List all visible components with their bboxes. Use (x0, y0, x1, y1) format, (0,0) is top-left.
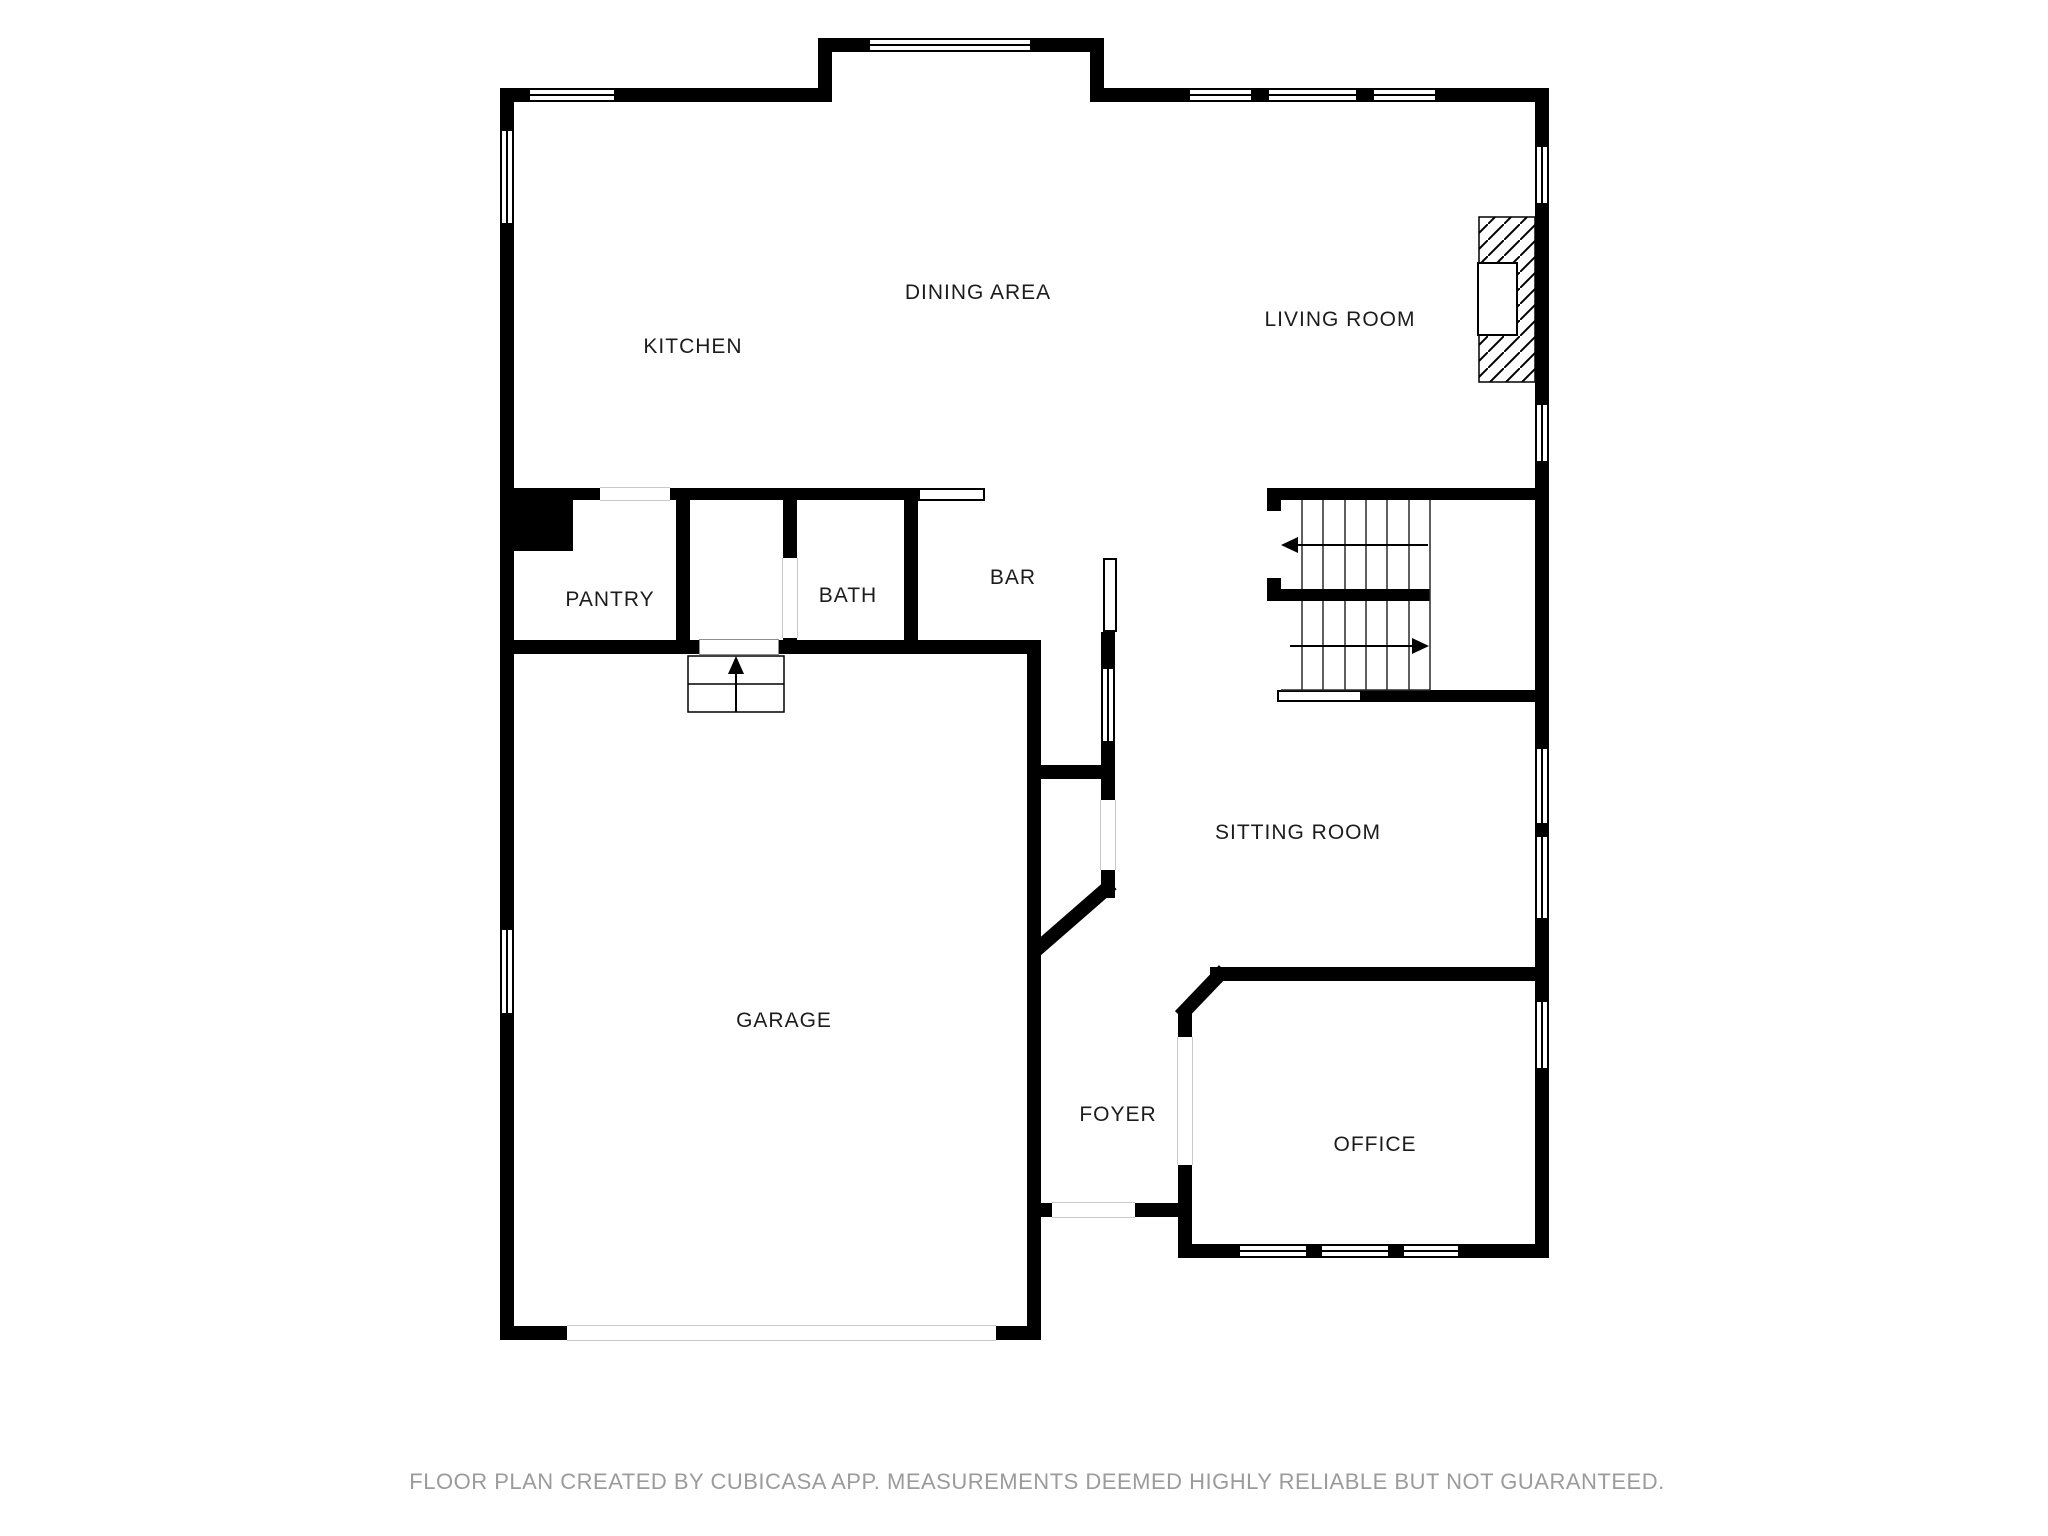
sitting-room-window-1 (1535, 747, 1549, 825)
fireplace (1478, 217, 1535, 382)
garage-door-opening (567, 1325, 996, 1341)
office-side-window (1535, 1000, 1549, 1070)
garage-stair-opening (699, 639, 779, 655)
pantry-right-wall (676, 500, 690, 654)
niche-interior-window (1101, 667, 1115, 743)
foyer-label: FOYER (1079, 1103, 1156, 1127)
pantry-door-opening (600, 487, 670, 501)
fireplace-firebox (1478, 263, 1517, 335)
staircase-lower-flight-treads (1302, 601, 1409, 690)
arrow-up-icon (728, 656, 744, 674)
bar-counter-side (1103, 558, 1117, 632)
living-room-label: LIVING ROOM (1264, 308, 1415, 332)
staircase-upper-flight-treads (1302, 500, 1409, 589)
plan-detail-overlay (0, 0, 2048, 1536)
office-window-3 (1402, 1244, 1460, 1258)
pantry-bath-top-wall (500, 488, 918, 500)
right-exterior-wall (1535, 88, 1549, 1258)
fireplace-hatch (1479, 217, 1535, 382)
disclaimer-text: FLOOR PLAN CREATED BY CUBICASA APP. MEAS… (409, 1469, 1664, 1495)
front-door-opening (1052, 1202, 1135, 1218)
closet-door-opening (1100, 800, 1116, 870)
bar-counter-passthrough (918, 488, 985, 501)
kitchen-side-window (500, 129, 514, 225)
staircase-divider-wall-cap (1267, 578, 1281, 589)
living-room-window-2 (1267, 88, 1358, 102)
floor-plan: KITCHEN DINING AREA LIVING ROOM PANTRY B… (0, 0, 2048, 1536)
office-door-opening (1177, 1037, 1193, 1165)
garage-entry-steps (688, 656, 784, 712)
kitchen-top-window (528, 88, 616, 102)
sitting-room-label: SITTING ROOM (1215, 821, 1381, 845)
office-window-1 (1238, 1244, 1308, 1258)
living-room-window-3 (1372, 88, 1437, 102)
garage-right-wall (1027, 640, 1041, 1340)
bath-right-wall (904, 500, 918, 654)
pantry-corner-block (513, 500, 573, 551)
dining-bump-window (868, 38, 1032, 52)
living-room-side-window-upper (1535, 145, 1549, 205)
closet-top-wall (1041, 765, 1115, 779)
left-exterior-wall (500, 88, 514, 1340)
sitting-room-bottom-wall (1210, 967, 1549, 981)
staircase-top-wall (1267, 488, 1549, 500)
arrow-right-icon (1290, 638, 1429, 654)
bath-door-opening (782, 558, 798, 638)
office-window-2 (1320, 1244, 1390, 1258)
living-room-window-1 (1188, 88, 1253, 102)
staircase-divider-wall (1267, 589, 1430, 601)
office-label: OFFICE (1334, 1133, 1417, 1157)
living-room-side-window-lower (1535, 403, 1549, 463)
sitting-room-window-2 (1535, 835, 1549, 920)
kitchen-label: KITCHEN (643, 335, 742, 359)
bar-label: BAR (990, 566, 1036, 590)
staircase-bottom-wall (1362, 690, 1549, 702)
staircase-ledge (1277, 690, 1362, 702)
staircase-top-wall-cap (1267, 500, 1281, 511)
arrow-left-icon (1281, 537, 1428, 553)
garage-side-window (500, 928, 514, 1015)
garage-label: GARAGE (736, 1009, 832, 1033)
bath-label: BATH (819, 584, 877, 608)
dining-area-label: DINING AREA (905, 281, 1051, 305)
pantry-label: PANTRY (565, 588, 654, 612)
